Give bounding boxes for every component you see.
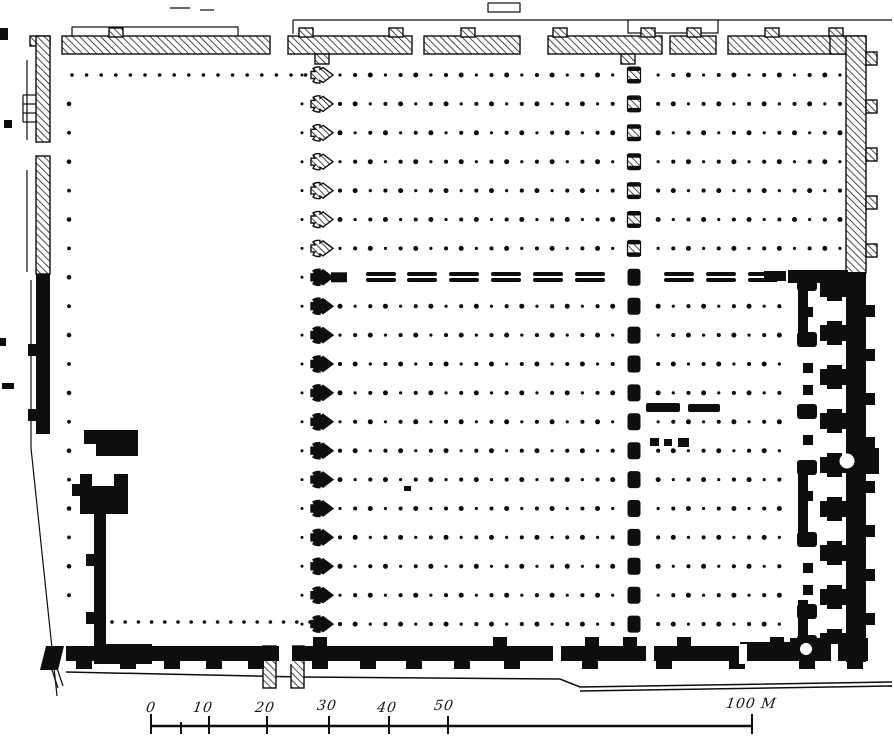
column-dot	[338, 334, 341, 337]
column-dot	[414, 536, 417, 539]
buttress-tab	[406, 660, 422, 669]
column-dot	[504, 333, 509, 338]
column-dot	[535, 333, 539, 337]
edge-mark	[0, 338, 6, 346]
column-dot	[686, 333, 691, 338]
column-dot	[444, 420, 448, 424]
column-dot	[565, 304, 570, 309]
column-dot	[67, 333, 72, 338]
column-dot	[732, 131, 736, 135]
column-dot	[792, 130, 797, 135]
column-dot	[429, 420, 432, 423]
column-dot	[716, 101, 721, 106]
column-dot	[338, 594, 341, 597]
column-dot	[672, 131, 675, 134]
scale-label: 20	[254, 700, 276, 716]
column-dot	[686, 391, 690, 395]
column-dot	[778, 362, 781, 365]
arcade-dash	[575, 278, 605, 282]
column-dot	[550, 593, 555, 598]
column-dot	[731, 593, 736, 598]
column-dot	[747, 130, 752, 135]
column-dot	[565, 564, 570, 569]
column-dot	[474, 362, 478, 366]
column-dot	[611, 449, 615, 453]
column-dot	[808, 73, 812, 77]
column-dot	[793, 160, 796, 163]
column-dot	[716, 448, 721, 453]
column-dot	[581, 218, 584, 221]
column-dot	[414, 449, 417, 452]
column-dot	[777, 333, 782, 338]
column-dot	[732, 536, 735, 539]
column-dot	[85, 73, 89, 77]
sanctuary-dot	[803, 585, 813, 595]
column-dot	[566, 160, 569, 163]
arcade-dash	[533, 272, 563, 276]
column-dot	[550, 246, 555, 251]
column-dot	[428, 217, 433, 222]
column-dot	[672, 391, 675, 394]
column-dot	[444, 246, 448, 250]
edge-mark	[0, 28, 8, 40]
sanctuary-pier	[797, 332, 817, 347]
column-dot	[123, 620, 127, 624]
column-dot	[459, 419, 464, 424]
column-dot	[520, 594, 523, 597]
column-dot	[519, 130, 524, 135]
buttress-tab	[687, 28, 701, 37]
column-dot	[338, 535, 342, 539]
column-dot	[732, 217, 736, 221]
column-dot	[354, 565, 357, 568]
column-dot	[368, 506, 373, 511]
buttress-tab	[360, 660, 376, 669]
column-dot	[702, 449, 706, 453]
column-dot	[275, 73, 279, 77]
scale-label: 40	[376, 700, 398, 716]
wall-bump	[866, 305, 875, 317]
buttress-tab	[389, 28, 403, 37]
pier-capsule-cap	[628, 137, 641, 142]
column-dot	[414, 564, 418, 568]
column-dot	[596, 217, 600, 221]
column-dot	[338, 622, 342, 626]
column-dot	[520, 102, 524, 106]
column-dot	[777, 131, 781, 135]
buttress-tab	[28, 344, 36, 356]
column-dot	[414, 189, 417, 192]
column-dot	[747, 334, 750, 337]
column-dot	[763, 565, 766, 568]
column-dot	[777, 73, 782, 78]
column-dot	[520, 73, 523, 76]
column-dot	[716, 362, 721, 367]
column-dot	[808, 160, 812, 164]
column-dot	[702, 594, 705, 597]
column-dot	[460, 189, 463, 192]
column-dot	[354, 305, 357, 308]
column-dot	[414, 391, 418, 395]
column-dot	[611, 189, 615, 193]
column-dot	[489, 622, 494, 627]
column-dot	[580, 246, 584, 250]
wall-bump	[585, 637, 599, 646]
column-dot	[490, 218, 493, 221]
column-dot	[611, 247, 614, 250]
column-dot	[581, 565, 584, 568]
pier-capsule-cap	[628, 240, 641, 245]
column-dot	[414, 304, 418, 308]
wall-bump	[677, 637, 691, 646]
column-dot	[717, 391, 720, 394]
column-dot	[701, 390, 706, 395]
column-dot	[519, 477, 524, 482]
column-dot	[338, 304, 343, 309]
column-dot	[747, 477, 752, 482]
column-dot	[687, 623, 690, 626]
column-dot	[717, 73, 721, 77]
column-dot	[838, 160, 841, 163]
buttress-tab	[553, 28, 567, 37]
column-dot	[383, 622, 387, 626]
wall-bump	[623, 637, 637, 646]
column-dot	[301, 102, 304, 105]
column-dot	[474, 449, 478, 453]
sanctuary-dot	[803, 435, 813, 445]
column-dot	[656, 535, 660, 539]
wall-bump	[493, 637, 507, 646]
column-dot	[505, 131, 509, 135]
pier-capsule	[628, 587, 641, 604]
column-dot	[550, 217, 554, 221]
column-dot	[429, 160, 432, 163]
sanctuary-pier	[797, 460, 817, 475]
column-dot	[535, 73, 539, 77]
column-dot	[413, 73, 418, 78]
column-dot	[474, 622, 478, 626]
buttress-tab	[109, 28, 123, 37]
column-dot	[383, 102, 387, 106]
pier-capsule	[628, 384, 641, 401]
column-dot	[444, 131, 447, 134]
column-dot	[565, 189, 569, 193]
column-dot	[444, 101, 449, 106]
column-dot	[428, 304, 433, 309]
wall-bump	[313, 637, 327, 646]
ground-line	[66, 672, 892, 687]
column-dot	[203, 620, 207, 624]
column-dot	[686, 304, 690, 308]
wall-opening	[279, 644, 292, 664]
column-dot	[301, 449, 304, 452]
column-dot	[656, 130, 661, 135]
buttress-tab	[454, 660, 470, 669]
column-dot	[596, 564, 600, 568]
column-dot	[505, 391, 509, 395]
pier-capsule	[628, 413, 641, 430]
column-dot	[398, 362, 403, 367]
column-dot	[460, 536, 463, 539]
pier-stub	[331, 272, 347, 282]
buttress-tab	[28, 409, 36, 421]
column-dot	[338, 362, 342, 366]
pier-capsule	[628, 471, 641, 488]
column-dot	[474, 535, 478, 539]
column-dot	[172, 73, 176, 77]
buttress-tab	[299, 28, 313, 37]
column-dot	[460, 623, 463, 626]
cross-pier	[827, 365, 842, 389]
column-dot	[535, 160, 539, 164]
column-dot	[444, 478, 447, 481]
column-dot	[368, 159, 373, 164]
column-dot	[762, 448, 767, 453]
pier-capsule-cap	[628, 124, 641, 129]
column-dot	[551, 449, 554, 452]
column-dot	[732, 391, 736, 395]
column-dot	[671, 160, 675, 164]
column-dot	[808, 218, 811, 221]
column-dot	[368, 131, 372, 135]
column-dot	[354, 131, 357, 134]
column-dot	[565, 130, 570, 135]
column-dot	[777, 478, 781, 482]
column-dot	[368, 564, 372, 568]
column-dot	[383, 449, 387, 453]
column-dot	[534, 448, 539, 453]
column-dot	[535, 420, 539, 424]
left-wall-black	[36, 274, 50, 434]
column-dot	[792, 189, 796, 193]
top-wall-segment	[548, 36, 662, 54]
column-dot	[489, 506, 493, 510]
column-dot	[67, 102, 72, 107]
column-dot	[671, 362, 676, 367]
column-dot	[657, 507, 660, 510]
column-dot	[550, 159, 555, 164]
column-dot	[459, 564, 463, 568]
column-dot	[762, 535, 767, 540]
column-dot	[671, 535, 676, 540]
column-dot	[460, 102, 463, 105]
column-dot	[489, 333, 493, 337]
column-dot	[656, 304, 661, 309]
column-dot	[398, 188, 403, 193]
pier-arrow	[311, 96, 333, 112]
buttress-tab	[72, 484, 80, 496]
column-dot	[414, 362, 417, 365]
column-dot	[671, 246, 675, 250]
column-dot	[414, 217, 418, 221]
column-dot	[762, 73, 766, 77]
column-dot	[475, 160, 478, 163]
column-dot	[535, 305, 538, 308]
column-dot	[368, 217, 372, 221]
column-dot	[338, 73, 341, 76]
column-dot	[534, 362, 539, 367]
pier-arrow	[311, 269, 333, 285]
column-dot	[368, 478, 372, 482]
pier-capsule-cap	[628, 224, 641, 229]
column-dot	[413, 159, 418, 164]
column-dot	[763, 305, 766, 308]
column-dot	[519, 217, 524, 222]
column-dot	[368, 593, 373, 598]
column-dot	[731, 159, 736, 164]
pier-arrow	[311, 558, 333, 574]
column-dot	[808, 246, 812, 250]
column-dot	[550, 131, 554, 135]
pier-arrow	[311, 587, 333, 603]
column-dot	[189, 620, 193, 624]
column-dot	[686, 419, 691, 424]
pier-arrow	[311, 443, 333, 459]
column-dot	[301, 160, 304, 163]
column-dot	[369, 102, 372, 105]
top-wall-segment	[670, 36, 716, 54]
column-dot	[687, 362, 690, 365]
column-dot	[459, 246, 464, 251]
column-dot	[114, 73, 118, 77]
column-dot	[611, 507, 614, 510]
column-dot	[596, 536, 599, 539]
column-dot	[428, 477, 433, 482]
column-dot	[732, 189, 735, 192]
column-dot	[399, 218, 402, 221]
column-dot	[444, 535, 449, 540]
cross-pier	[827, 541, 842, 565]
column-dot	[399, 593, 403, 597]
column-dot	[384, 420, 387, 423]
left-wall-lower	[94, 514, 106, 648]
arcade-dash	[533, 278, 563, 282]
column-dot	[565, 477, 570, 482]
column-dot	[747, 449, 751, 453]
column-dot	[550, 564, 554, 568]
column-dot	[716, 535, 721, 540]
column-dot	[368, 333, 373, 338]
column-dot	[535, 478, 538, 481]
cross-pier	[827, 321, 842, 345]
column-dot	[656, 622, 660, 626]
column-dot	[535, 218, 538, 221]
buttress-tab	[866, 148, 877, 161]
column-dot	[301, 363, 304, 366]
column-dot	[368, 419, 373, 424]
column-dot	[67, 159, 72, 164]
column-dot	[565, 622, 569, 626]
column-dot	[747, 73, 750, 76]
buttress-tab	[76, 660, 92, 669]
column-dot	[686, 564, 690, 568]
column-dot	[595, 419, 600, 424]
column-dot	[686, 246, 691, 251]
column-dot	[551, 189, 554, 192]
arcade-dash	[664, 278, 694, 282]
wall-bump	[866, 349, 875, 361]
column-dot	[565, 535, 569, 539]
column-dot	[67, 536, 71, 540]
column-dot	[369, 536, 372, 539]
column-dot	[474, 304, 479, 309]
column-dot	[671, 101, 676, 106]
column-dot	[717, 506, 721, 510]
column-dot	[429, 507, 432, 510]
column-dot	[489, 188, 494, 193]
column-dot	[301, 391, 304, 394]
sanctuary-pier	[797, 604, 817, 619]
column-dot	[610, 217, 615, 222]
column-dot	[565, 217, 570, 222]
column-dot	[505, 102, 508, 105]
column-dot	[611, 420, 614, 423]
column-dot	[656, 189, 660, 193]
column-dot	[459, 73, 464, 78]
sanctuary-dot	[803, 385, 813, 395]
pier-arrow	[311, 211, 333, 227]
column-dot	[490, 391, 493, 394]
pier-capsule	[628, 298, 641, 315]
column-dot	[717, 565, 720, 568]
column-dot	[747, 622, 751, 626]
column-dot	[747, 507, 750, 510]
column-dot	[490, 305, 493, 308]
column-dot	[459, 333, 464, 338]
scale-label: 50	[433, 698, 455, 714]
column-dot	[762, 188, 767, 193]
column-dot	[301, 420, 304, 423]
column-dot	[762, 506, 766, 510]
column-dot	[747, 217, 752, 222]
column-dot	[67, 362, 71, 366]
column-dot	[444, 565, 447, 568]
column-dot	[822, 73, 827, 78]
column-dot	[67, 189, 71, 193]
column-dot	[731, 73, 736, 78]
column-dot	[301, 594, 304, 597]
column-dot	[67, 275, 72, 280]
column-dot	[67, 478, 71, 482]
pier-arrow	[311, 154, 333, 170]
column-dot	[732, 304, 736, 308]
column-dot	[747, 102, 751, 106]
column-dot	[338, 102, 342, 106]
arcade-dash	[706, 272, 736, 276]
buttress-tab	[206, 660, 222, 669]
column-dot	[792, 217, 797, 222]
column-dot	[444, 218, 447, 221]
column-dot	[67, 304, 71, 308]
column-dot	[383, 362, 387, 366]
arcade-dash	[366, 278, 396, 282]
column-dot	[67, 247, 71, 251]
column-dot	[242, 620, 246, 624]
cross-pier	[827, 585, 842, 609]
wall-opening	[92, 474, 114, 486]
wall-fragment-dot	[664, 439, 672, 446]
column-dot	[369, 623, 372, 626]
column-dot	[580, 593, 584, 597]
column-dot	[338, 564, 343, 569]
column-dot	[671, 73, 675, 77]
column-dot	[520, 622, 524, 626]
column-dot	[459, 478, 463, 482]
column-dot	[474, 189, 478, 193]
column-dot	[338, 420, 341, 423]
sanctuary-pier	[797, 532, 817, 547]
column-dot	[520, 535, 524, 539]
